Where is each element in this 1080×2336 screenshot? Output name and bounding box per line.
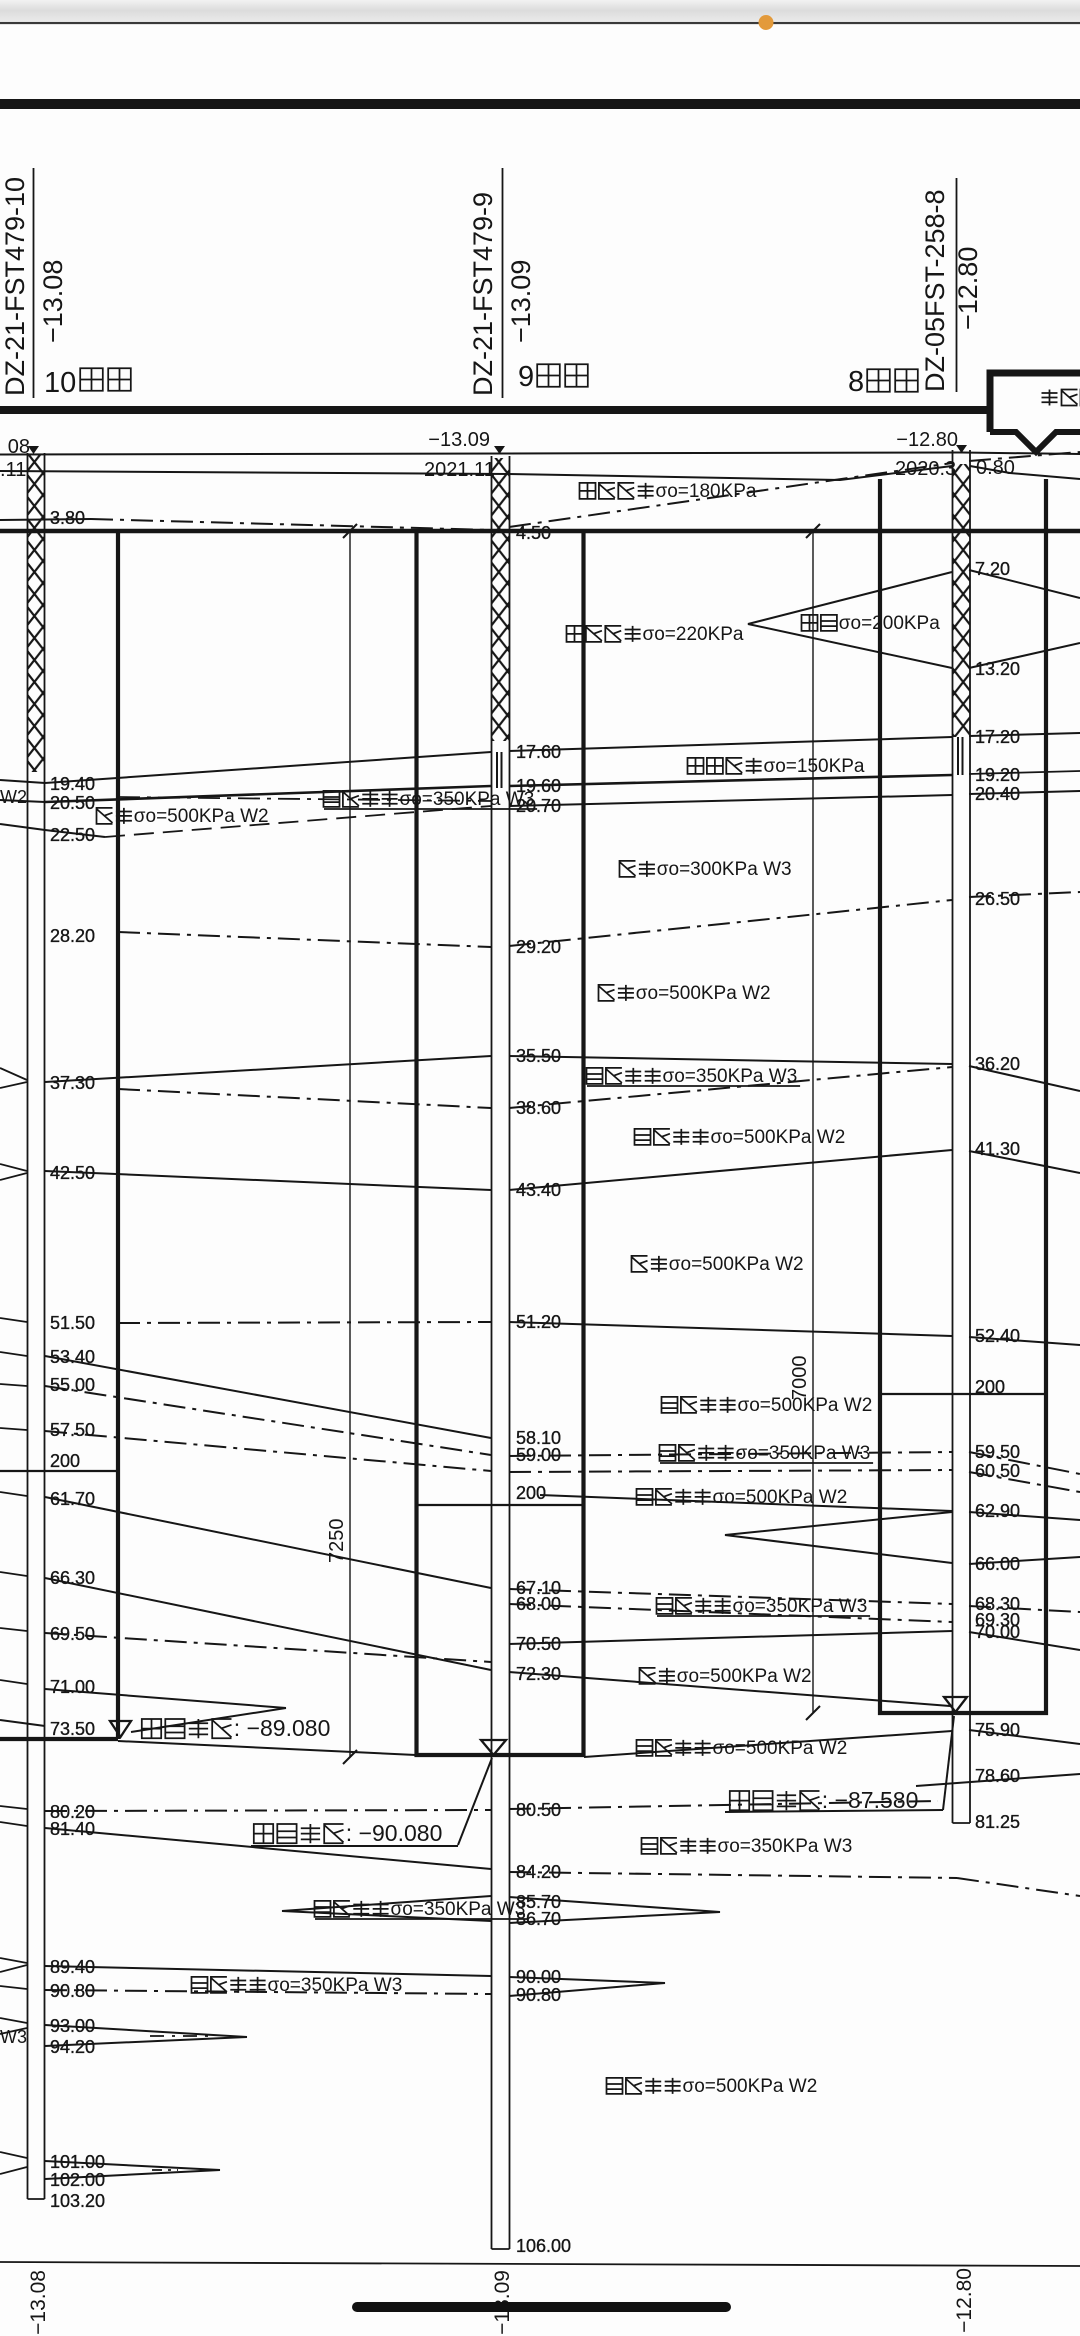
svg-text:σo=500KPa W2: σo=500KPa W2	[669, 1254, 804, 1275]
svg-text:σo=500KPa W2: σo=500KPa W2	[677, 1666, 812, 1687]
svg-text:8: 8	[848, 366, 864, 398]
svg-text:DZ-21-FST479-10: DZ-21-FST479-10	[0, 177, 30, 396]
svg-text:26.50: 26.50	[975, 889, 1020, 909]
svg-text:2020.3: 2020.3	[895, 458, 956, 480]
svg-text:2021.11: 2021.11	[424, 459, 495, 481]
svg-text:66.30: 66.30	[50, 1568, 95, 1588]
svg-text:200: 200	[516, 1483, 546, 1503]
svg-text:σo=500KPa W2: σo=500KPa W2	[134, 806, 269, 827]
svg-text:200: 200	[50, 1451, 80, 1471]
svg-text:−13.09: −13.09	[506, 260, 536, 343]
svg-text:84.20: 84.20	[516, 1862, 561, 1882]
svg-text:37.30: 37.30	[50, 1073, 95, 1093]
svg-text:69.50: 69.50	[50, 1624, 95, 1644]
svg-text:19.20: 19.20	[975, 765, 1020, 785]
svg-text:200: 200	[975, 1377, 1005, 1397]
svg-text:51.20: 51.20	[516, 1312, 561, 1332]
svg-text:80.50: 80.50	[516, 1800, 561, 1820]
svg-text:22.50: 22.50	[50, 825, 95, 845]
svg-text:19.40: 19.40	[50, 774, 95, 794]
svg-text:36.20: 36.20	[975, 1054, 1020, 1074]
svg-text:102.00: 102.00	[50, 2170, 105, 2190]
svg-text:08: 08	[8, 436, 30, 458]
svg-text:4.50: 4.50	[516, 523, 551, 543]
svg-text:55.00: 55.00	[50, 1375, 95, 1395]
svg-text:71.00: 71.00	[50, 1677, 95, 1697]
svg-text:W3: W3	[0, 2027, 27, 2047]
svg-text:−13.08: −13.08	[27, 2270, 50, 2335]
svg-text:103.20: 103.20	[50, 2191, 105, 2211]
svg-text:10: 10	[44, 367, 76, 399]
svg-text:81.25: 81.25	[975, 1812, 1020, 1832]
svg-text:−12.80: −12.80	[953, 2268, 976, 2333]
svg-text:101.00: 101.00	[50, 2152, 105, 2172]
svg-text:9: 9	[518, 361, 534, 393]
svg-text:3.80: 3.80	[50, 508, 85, 528]
svg-text:σo=500KPa W2: σo=500KPa W2	[713, 1738, 848, 1759]
svg-text:σo=500KPa W2: σo=500KPa W2	[683, 2076, 818, 2097]
svg-text:90.80: 90.80	[516, 1985, 561, 2005]
svg-text:σo=500KPa W2: σo=500KPa W2	[738, 1395, 873, 1416]
svg-text:29.20: 29.20	[516, 937, 561, 957]
svg-text:13.20: 13.20	[975, 659, 1020, 679]
svg-text:51.50: 51.50	[50, 1313, 95, 1333]
svg-text:σo=350KPa W3: σo=350KPa W3	[391, 1899, 526, 1920]
svg-text:7.20: 7.20	[975, 559, 1010, 579]
svg-text:20.40: 20.40	[975, 784, 1020, 804]
svg-text:61.70: 61.70	[50, 1489, 95, 1509]
svg-text:73.50: 73.50	[50, 1719, 95, 1739]
svg-text:90.00: 90.00	[516, 1967, 561, 1987]
svg-text:7000: 7000	[789, 1356, 811, 1401]
svg-text:.11: .11	[0, 459, 26, 481]
svg-text:78.60: 78.60	[975, 1766, 1020, 1786]
svg-text:59.00: 59.00	[516, 1445, 561, 1465]
svg-text:75.90: 75.90	[975, 1720, 1020, 1740]
svg-text:70.00: 70.00	[975, 1622, 1020, 1642]
svg-text:53.40: 53.40	[50, 1347, 95, 1367]
svg-text:σo=350KPa W3: σo=350KPa W3	[268, 1975, 403, 1996]
svg-text:28.20: 28.20	[50, 926, 95, 946]
svg-text:: −87.580: : −87.580	[822, 1787, 919, 1813]
svg-text:W2: W2	[0, 787, 27, 807]
svg-text:σo=350KPa W3: σo=350KPa W3	[663, 1066, 798, 1087]
svg-text:σo=500KPa W2: σo=500KPa W2	[636, 983, 771, 1004]
svg-text:57.50: 57.50	[50, 1420, 95, 1440]
svg-text:106.00: 106.00	[516, 2236, 571, 2256]
svg-text:σo=220KPa: σo=220KPa	[643, 624, 744, 645]
svg-text:σo=350KPa W3: σo=350KPa W3	[718, 1836, 853, 1857]
svg-text:−12.80: −12.80	[896, 429, 958, 451]
svg-text:35.50: 35.50	[516, 1046, 561, 1066]
svg-text:66.00: 66.00	[975, 1554, 1020, 1574]
svg-text:σo=350KPa W3: σo=350KPa W3	[733, 1596, 868, 1617]
svg-text:60.50: 60.50	[975, 1461, 1020, 1481]
svg-text:94.20: 94.20	[50, 2037, 95, 2057]
svg-text:93.00: 93.00	[50, 2016, 95, 2036]
svg-text:90.80: 90.80	[50, 1981, 95, 2001]
svg-text:σo=300KPa W3: σo=300KPa W3	[657, 859, 792, 880]
svg-text:−13.09: −13.09	[428, 429, 490, 451]
svg-text:σo=200KPa: σo=200KPa	[839, 613, 940, 634]
svg-text:42.50: 42.50	[50, 1163, 95, 1183]
svg-text:20.50: 20.50	[50, 793, 95, 813]
svg-text:0.80: 0.80	[976, 457, 1015, 479]
svg-text:52.40: 52.40	[975, 1326, 1020, 1346]
svg-text:38.60: 38.60	[516, 1098, 561, 1118]
svg-text:17.20: 17.20	[975, 727, 1020, 747]
svg-text:DZ-05FST-258-8: DZ-05FST-258-8	[920, 189, 950, 392]
svg-text:41.30: 41.30	[975, 1139, 1020, 1159]
svg-text:−13.08: −13.08	[38, 260, 68, 343]
svg-text:σo=500KPa W2: σo=500KPa W2	[713, 1487, 848, 1508]
svg-text:72.30: 72.30	[516, 1664, 561, 1684]
svg-text:68.00: 68.00	[516, 1594, 561, 1614]
svg-text:62.90: 62.90	[975, 1501, 1020, 1521]
svg-text:59.50: 59.50	[975, 1442, 1020, 1462]
svg-text:89.40: 89.40	[50, 1957, 95, 1977]
svg-text:σo=350KPa W3: σo=350KPa W3	[736, 1443, 871, 1464]
svg-text:σo=350KPa W3: σo=350KPa W3	[400, 789, 535, 810]
svg-text:DZ-21-FST479-9: DZ-21-FST479-9	[468, 192, 498, 396]
svg-text:: −90.080: : −90.080	[346, 1820, 443, 1846]
svg-text:43.40: 43.40	[516, 1180, 561, 1200]
svg-text:σo=180KPa: σo=180KPa	[656, 481, 757, 502]
svg-text:σo=500KPa W2: σo=500KPa W2	[711, 1127, 846, 1148]
svg-text:81.40: 81.40	[50, 1819, 95, 1839]
svg-text:70.50: 70.50	[516, 1634, 561, 1654]
svg-text:: −89.080: : −89.080	[234, 1715, 331, 1741]
svg-text:σo=150KPa: σo=150KPa	[764, 756, 865, 777]
svg-text:17.60: 17.60	[516, 742, 561, 762]
svg-text:−12.80: −12.80	[953, 247, 983, 330]
